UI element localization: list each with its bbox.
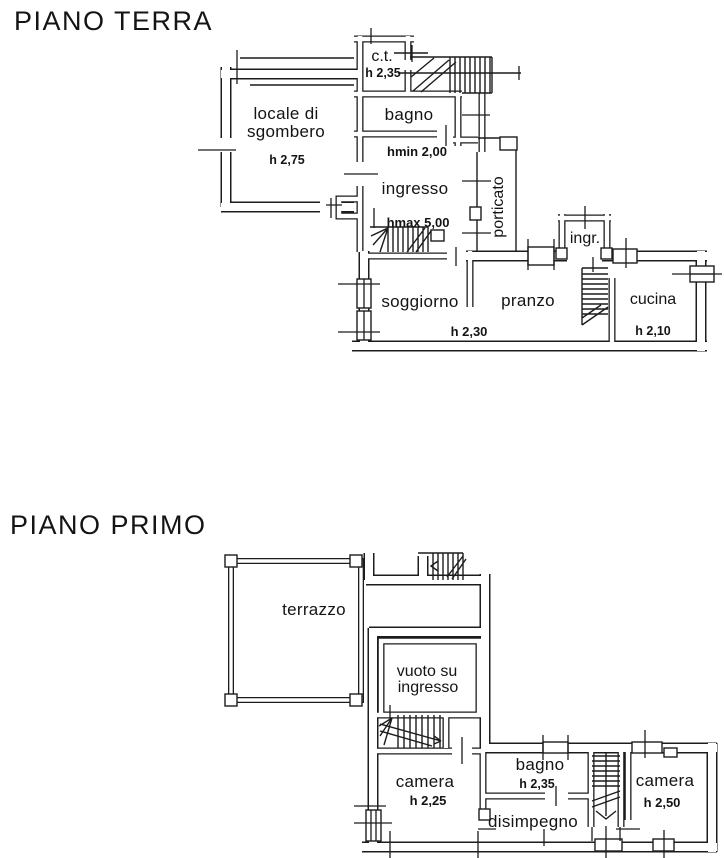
room-label-terrazzo: terrazzo	[282, 600, 346, 619]
room-label-disimpegno: disimpegno	[488, 812, 578, 831]
ff-window-camera-sx	[366, 810, 381, 841]
first-floor-plan: PIANO PRIMO terrazzo vuoto su ingresso c…	[10, 510, 717, 858]
ff-internal-stair	[379, 715, 441, 748]
ff-window-bottom-1	[595, 839, 622, 851]
room-label-camera-sx: camera	[396, 772, 455, 791]
floorplan-sheet: PIANO TERRA locale di sgombero h 2,75 c.…	[0, 0, 724, 858]
ff-window-camera-dx	[632, 742, 662, 753]
gf-stair-marker-box	[431, 230, 444, 241]
gf-external-stair	[410, 57, 492, 93]
ff-terrace-post-bl	[225, 694, 237, 706]
gf-window-pranzo-right	[613, 249, 637, 263]
room-label-locale-line1: locale di	[253, 104, 318, 123]
room-label-porticato: porticato	[490, 176, 507, 237]
height-label-ct: h 2,35	[365, 66, 400, 80]
room-label-camera-dx: camera	[636, 771, 695, 790]
ff-terrace-post-tr	[350, 555, 362, 567]
height-label-bagno-ff: h 2,35	[519, 777, 554, 791]
room-label-bagno-ff: bagno	[516, 755, 565, 774]
ground-floor-plan: PIANO TERRA locale di sgombero h 2,75 c.…	[14, 6, 722, 351]
ff-terrace-post-tl	[225, 555, 237, 567]
room-label-bagno-gf: bagno	[385, 105, 434, 124]
room-label-ingr: ingr.	[570, 230, 600, 247]
room-label-locale-line2: sgombero	[247, 122, 325, 141]
ff-terrace-walls	[231, 561, 361, 700]
floorplan-drawing: PIANO TERRA locale di sgombero h 2,75 c.…	[0, 0, 724, 858]
gf-window-pranzo-left	[528, 247, 554, 265]
gf-internal-stair	[370, 227, 431, 252]
height-label-camera-dx: h 2,50	[644, 795, 681, 810]
room-label-cucina: cucina	[630, 291, 676, 308]
gf-porch-jamb-right	[601, 248, 612, 259]
gf-kitchen-stair	[582, 268, 608, 325]
ff-window-bagno	[543, 742, 568, 753]
ff-jamb-camera-dx	[664, 748, 677, 757]
height-label-pranzo: h 2,30	[451, 324, 488, 339]
room-label-vuoto-line2: ingresso	[398, 679, 459, 696]
first-floor-title: PIANO PRIMO	[10, 510, 207, 540]
ff-stairwell-stair	[592, 753, 620, 819]
ff-terrace-walls-core	[231, 561, 361, 700]
height-label-bagno-gf: hmin 2,00	[387, 144, 447, 159]
ground-floor-title: PIANO TERRA	[14, 6, 213, 36]
gf-porticato-corner-pillar	[500, 137, 517, 150]
height-label-ingresso: hmax 5,00	[387, 215, 450, 230]
height-label-locale: h 2,75	[269, 153, 304, 167]
room-label-ct: c.t.	[371, 48, 392, 65]
gf-porticato-column	[470, 207, 481, 220]
gf-porch-jamb-left	[556, 248, 567, 259]
height-label-camera-sx: h 2,25	[410, 793, 447, 808]
room-label-pranzo: pranzo	[501, 291, 555, 310]
height-label-cucina: h 2,10	[635, 324, 670, 338]
room-label-soggiorno: soggiorno	[381, 292, 458, 311]
room-label-vuoto-line1: vuoto su	[397, 663, 457, 680]
ff-terrace-post-br	[350, 694, 362, 706]
room-label-ingresso: ingresso	[382, 179, 449, 198]
